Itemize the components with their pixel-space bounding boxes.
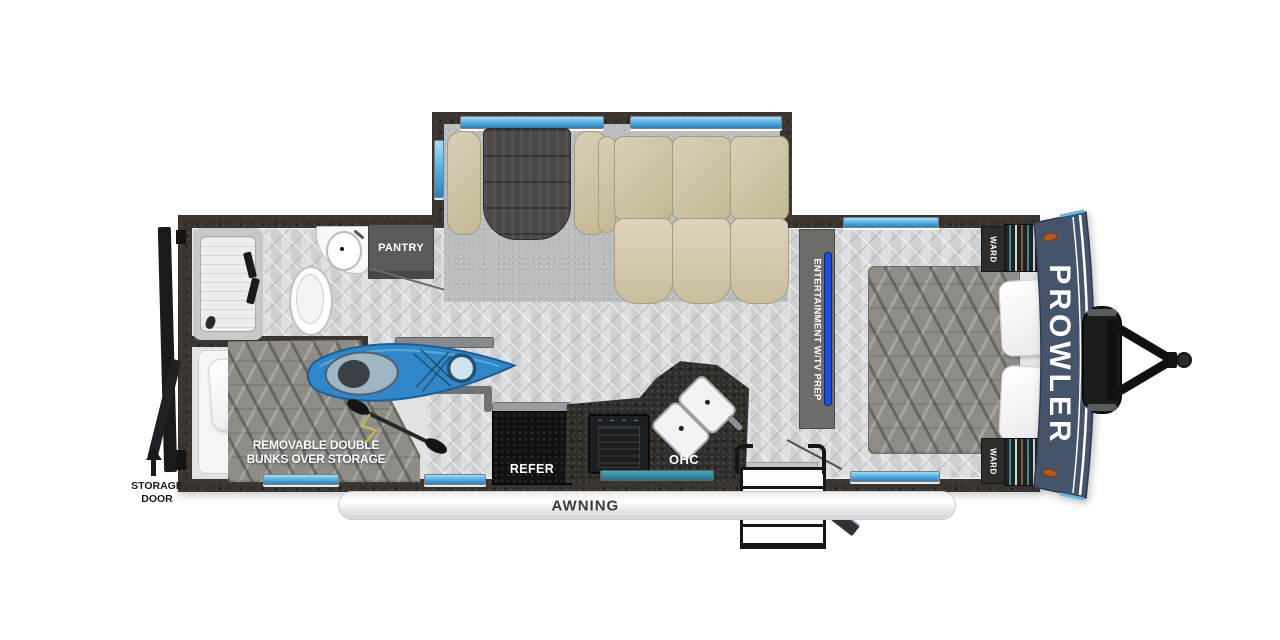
- wardrobe-front-bottom: WARD: [981, 438, 1005, 484]
- ohc-label: OHC: [660, 452, 708, 467]
- ward-top-label: WARD: [989, 236, 998, 262]
- sofa-seat-cushion: [672, 218, 731, 304]
- sofa-seat-cushion: [730, 218, 789, 304]
- shower: [193, 228, 263, 340]
- entertainment-label: ENTERTAINMENT W/TV PREP: [812, 258, 823, 400]
- window-bunk-2: [424, 474, 486, 485]
- step-handrail: [735, 444, 753, 474]
- hitch-ball: [1177, 353, 1191, 367]
- bathroom-sink-basin: [326, 231, 362, 271]
- awning-label: AWNING: [552, 497, 620, 514]
- window-bedroom-top: [843, 217, 939, 228]
- toilet: [289, 266, 333, 336]
- ward-bottom-label: WARD: [989, 448, 998, 474]
- brand-logo: PROWLER: [1043, 264, 1076, 445]
- sofa-back-cushion: [614, 136, 673, 220]
- window-kitchen: [600, 470, 714, 481]
- door-hinge: [176, 450, 186, 470]
- floorplan-canvas: PANTRY REMOVABLE DOUBLE BUNKS OVER STORA…: [0, 0, 1280, 640]
- storage-door-arrow-stem: [151, 459, 156, 476]
- dinette-bench-left: [447, 131, 481, 235]
- sofa-back-cushion: [730, 136, 789, 220]
- window-bedroom-bottom: [850, 471, 940, 482]
- stove: [588, 414, 650, 474]
- bed-quilt: [868, 266, 1020, 454]
- hitch-assembly: [1075, 295, 1205, 425]
- sofa-back-cushion: [672, 136, 731, 220]
- pantry-label: PANTRY: [378, 242, 424, 254]
- storage-door-label: STORAGE DOOR: [128, 480, 186, 506]
- dinette-table: [483, 128, 571, 240]
- tv-icon: [824, 252, 832, 406]
- step-handrail: [808, 444, 826, 474]
- coupler: [1163, 352, 1177, 368]
- bathroom-sink-drain: [340, 247, 344, 251]
- sofa-seat-cushion: [614, 218, 673, 304]
- window-bunk-1: [263, 474, 339, 485]
- door-hinge: [176, 230, 186, 244]
- refrigerator: REFER: [492, 411, 572, 485]
- slide-window-left: [434, 140, 444, 198]
- refer-label: REFER: [493, 462, 571, 476]
- stove-knobs: [594, 418, 642, 423]
- oven-front: [598, 426, 640, 468]
- awning-bar: AWNING: [338, 491, 956, 520]
- slide-window-top-2: [630, 116, 782, 129]
- wardrobe-front-top: WARD: [981, 226, 1005, 272]
- paddle-icon: [345, 396, 450, 457]
- toilet-seat: [296, 274, 324, 324]
